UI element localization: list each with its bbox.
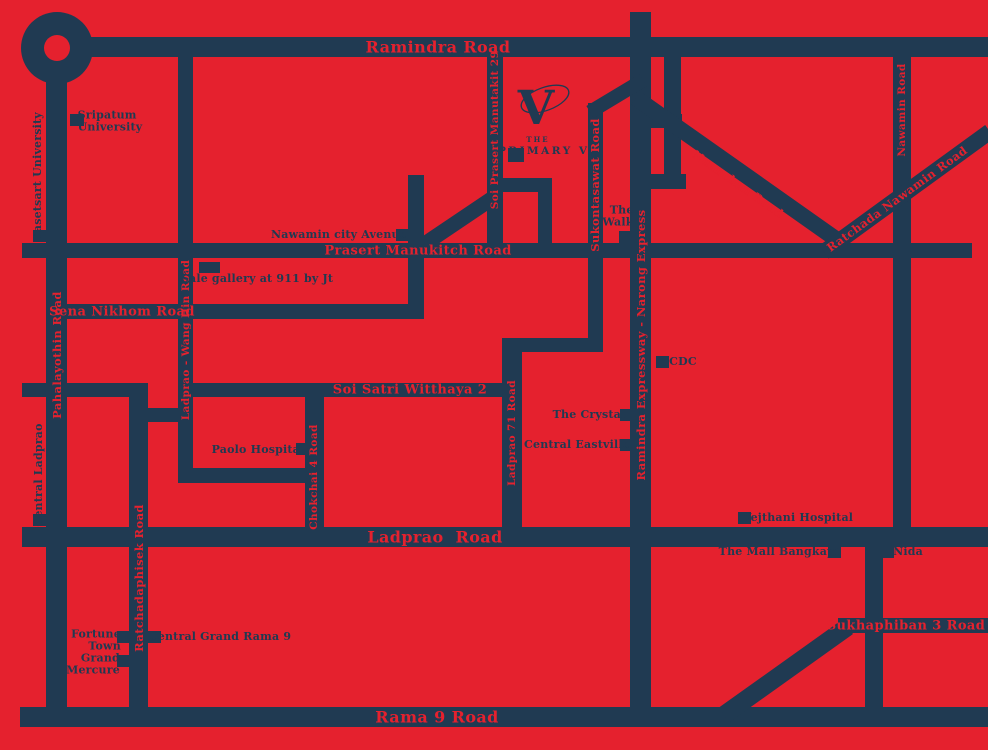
road-label-sukhaphiban-3-road: Sukhaphiban 3 Road	[827, 619, 985, 634]
label-central-grand-rama-9: Central Grand Rama 9	[149, 631, 291, 643]
road-label-ratchadaphisek-road: Ratchadaphisek Road	[132, 504, 146, 652]
road-ladprao-road	[22, 527, 988, 547]
label-the-walk: TheWalk	[602, 205, 633, 230]
label-sale-gallery: Sale gallery at 911 by Jt	[181, 273, 333, 285]
label-the-mall-bangkapi: The Mall Bangkapi	[719, 546, 840, 558]
label-paolo-hospital: Paolo Hospital	[212, 444, 305, 456]
label-central-ladprao: Central Ladprao	[33, 423, 45, 526]
road-rama-9-road	[20, 707, 988, 727]
marker-cdc	[656, 356, 669, 368]
label-fortune-town: FortuneTown	[71, 629, 121, 654]
logo-the-text: THE	[498, 135, 578, 144]
marker-the-walk	[619, 231, 632, 243]
road-ramindra-road	[60, 37, 988, 57]
road-label-rama-9-road: Rama 9 Road	[375, 708, 499, 727]
road-label-chokchai-4-road: Chokchai 4 Road	[308, 424, 320, 530]
primary-v-logo: V THE PRIMARY V	[498, 78, 578, 157]
road-label-prasert-manukitch-road: Prasert Manukitch Road	[324, 244, 511, 259]
label-kasetsart-university: Kasetsart University	[32, 112, 44, 242]
marker-nida	[881, 546, 894, 558]
label-sripatum-university: SripatumUniversity	[78, 110, 143, 135]
road-label-soi-prasert-manutakit-29: Soi Prasert Manutakit 29	[489, 51, 501, 209]
roundabout-center	[44, 35, 70, 61]
marker-the-primary-v	[508, 148, 524, 162]
label-vejthani-hospital: Vejthani Hospital	[743, 512, 853, 524]
label-nida: Nida	[893, 546, 923, 558]
road-label-soi-satri-witthaya-2: Soi Satri Witthaya 2	[333, 383, 487, 398]
label-nawamin-city-avenue: Nawamin city Avenue	[271, 229, 407, 241]
road-label-sukontasawat-road: Sukontasawat Road	[588, 118, 602, 252]
label-the-crystal: The Crystal	[553, 409, 626, 421]
location-map-canvas: V THE PRIMARY V Ramindra RoadPrasert Man…	[0, 0, 988, 750]
road-label-ladprao-road: Ladprao Road	[367, 528, 502, 547]
label-central-eastville: Central Eastville	[524, 439, 630, 451]
logo-v-glyph: V	[517, 81, 556, 130]
primary-v-logo-mark: V	[498, 78, 578, 130]
road-label-ramindra-expressway-narong-express: Ramindra Expressway - Narong Express	[634, 209, 648, 480]
road-label-pahalayothin-road: Pahalayothin Road	[50, 291, 64, 419]
label-grand-mercure: GrandMercure	[66, 653, 120, 678]
road-label-ladprao-71-road: Ladprao 71 Road	[506, 380, 518, 486]
road-logo-feeder	[538, 178, 552, 258]
label-cdc: CDC	[669, 356, 697, 368]
road-paolo-loop	[182, 468, 322, 483]
road-label-nawamin-road: Nawamin Road	[896, 63, 908, 156]
road-label-sena-nikhom-road: Sena Nikhom Road	[49, 305, 195, 320]
